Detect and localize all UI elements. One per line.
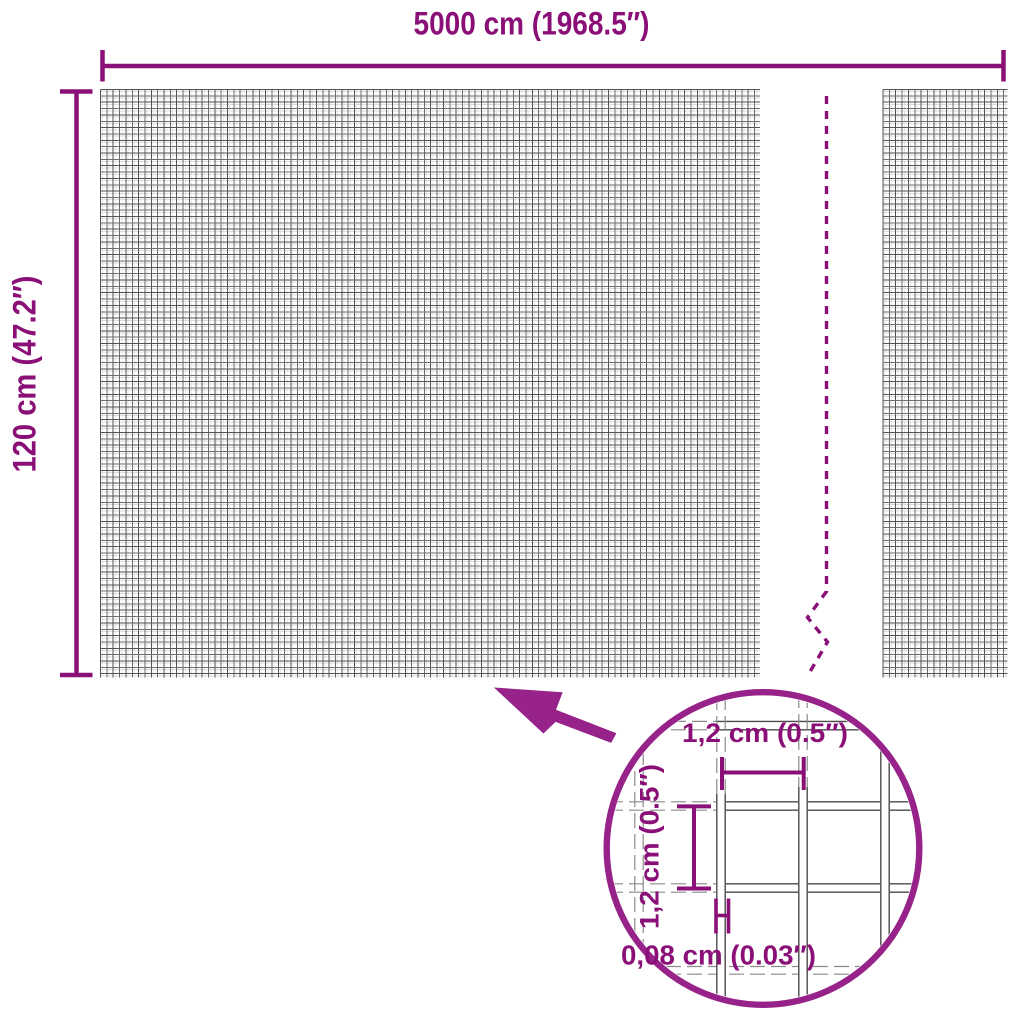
svg-text:0,08 cm (0.03″): 0,08 cm (0.03″) <box>621 940 816 971</box>
svg-text:120 cm (47.2″): 120 cm (47.2″) <box>7 276 43 473</box>
svg-text:5000 cm (1968.5″): 5000 cm (1968.5″) <box>414 6 650 42</box>
svg-text:1,2 cm (0.5″): 1,2 cm (0.5″) <box>682 718 848 748</box>
svg-text:1,2 cm (0.5″): 1,2 cm (0.5″) <box>635 764 665 929</box>
